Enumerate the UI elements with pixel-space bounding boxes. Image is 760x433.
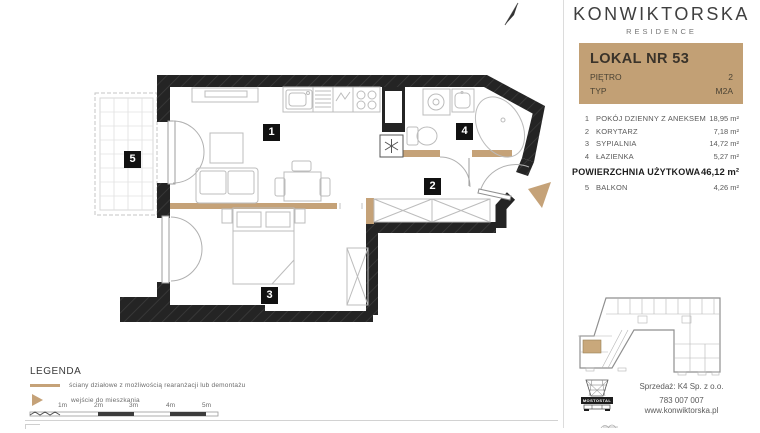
room-name: KORYTARZ [596, 127, 714, 136]
brand-logo: KONWIKTORSKA [564, 4, 759, 25]
partner-logo-partial [600, 422, 620, 428]
room-name: BALKON [596, 183, 714, 192]
site-plan [578, 296, 734, 383]
floor-plan: 1 2 3 4 5 [0, 0, 563, 428]
legend-title: LEGENDA [30, 366, 550, 377]
balcony-door-bedroom [162, 216, 202, 283]
room-area: 5,27 m² [714, 152, 739, 161]
partition-walls [170, 150, 512, 224]
plan-label-room-4: 4 [456, 123, 473, 140]
plan-label-room-1: 1 [263, 124, 280, 141]
vent-shaft [382, 87, 405, 132]
toilet [407, 127, 437, 145]
phone-number[interactable]: 783 007 007 [614, 396, 749, 407]
svg-text:MOSTOSTAL: MOSTOSTAL [583, 398, 611, 403]
bottom-cut-mark [25, 424, 40, 429]
type-label: TYP [590, 86, 607, 96]
plan-label-room-3: 3 [261, 287, 278, 304]
room-area: 7,18 m² [714, 127, 739, 136]
table-row: 5 BALKON 4,26 m² [579, 183, 739, 192]
floor-label: PIĘTRO [590, 72, 622, 82]
mostostal-logo: MOSTOSTAL [580, 379, 614, 415]
plan-label-room-5: 5 [124, 151, 141, 168]
plan-label-room-2: 2 [424, 178, 441, 195]
balcony-list: 5 BALKON 4,26 m² [579, 183, 739, 192]
bathroom-sink [452, 89, 474, 112]
corridor-closet [374, 199, 490, 222]
room-name: ŁAZIENKA [596, 152, 714, 161]
website-link[interactable]: www.konwiktorska.pl [614, 406, 749, 417]
washing-machine [423, 89, 450, 115]
room-no: 3 [579, 139, 589, 148]
total-area-label: POWIERZCHNIA UŻYTKOWA [572, 167, 701, 177]
dining-table [275, 161, 330, 201]
type-value: M2A [716, 86, 733, 96]
room-no: 4 [579, 152, 589, 161]
seller-text: Sprzedaż: K4 Sp. z o.o. [614, 382, 749, 393]
room-list: 1 POKÓJ DZIENNY Z ANEKSEM 18,95 m² 2 KOR… [579, 114, 739, 161]
table-row: 1 POKÓJ DZIENNY Z ANEKSEM 18,95 m² [579, 114, 739, 123]
bathroom-door [440, 157, 470, 187]
floor-value: 2 [728, 72, 733, 82]
site-plan-unit-highlight [583, 340, 601, 353]
partition-wall-icon [30, 384, 60, 387]
legend: LEGENDA ściany działowe z możliwością re… [30, 366, 550, 406]
legend-partition-label: ściany działowe z możliwością rearanżacj… [69, 382, 245, 389]
total-area-row: POWIERZCHNIA UŻYTKOWA 46,12 m² [572, 167, 739, 178]
tv-sideboard [192, 88, 258, 102]
contact-block: MOSTOSTAL Sprzedaż: K4 Sp. z o.o. 783 00… [580, 379, 749, 417]
bed [222, 208, 305, 284]
room-name: SYPIALNIA [596, 139, 709, 148]
entrance-arrow [528, 182, 551, 208]
north-arrow [505, 3, 518, 25]
vent-box [380, 135, 403, 157]
info-panel: KONWIKTORSKA RESIDENCE LOKAL NR 53 PIĘTR… [563, 0, 759, 428]
room-area: 18,95 m² [709, 114, 739, 123]
wardrobe [347, 248, 368, 305]
bottom-divider [25, 420, 558, 421]
room-no: 2 [579, 127, 589, 136]
table-row: 4 ŁAZIENKA 5,27 m² [579, 152, 739, 161]
total-area-value: 46,12 m² [701, 167, 739, 178]
unit-card: LOKAL NR 53 PIĘTRO 2 TYP M2A [579, 43, 743, 104]
table-row: 3 SYPIALNIA 14,72 m² [579, 139, 739, 148]
brand-residence: RESIDENCE [564, 27, 759, 36]
room-no: 1 [579, 114, 589, 123]
coffee-table [210, 133, 243, 163]
room-name: POKÓJ DZIENNY Z ANEKSEM [596, 114, 709, 123]
room-area: 14,72 m² [709, 139, 739, 148]
kitchen-counter [283, 87, 380, 112]
unit-title: LOKAL NR 53 [590, 51, 733, 67]
table-row: 2 KORYTARZ 7,18 m² [579, 127, 739, 136]
scale-bar: 1m 2m 3m 4m 5m [28, 402, 224, 418]
floor-plan-drawing [0, 0, 563, 428]
scale-bar-graphic [28, 402, 224, 418]
room-no: 5 [579, 183, 589, 192]
balcony-door-living [168, 121, 204, 184]
sofa [196, 168, 258, 203]
bedroom-opening-jambs [340, 203, 362, 209]
room-area: 4,26 m² [714, 183, 739, 192]
